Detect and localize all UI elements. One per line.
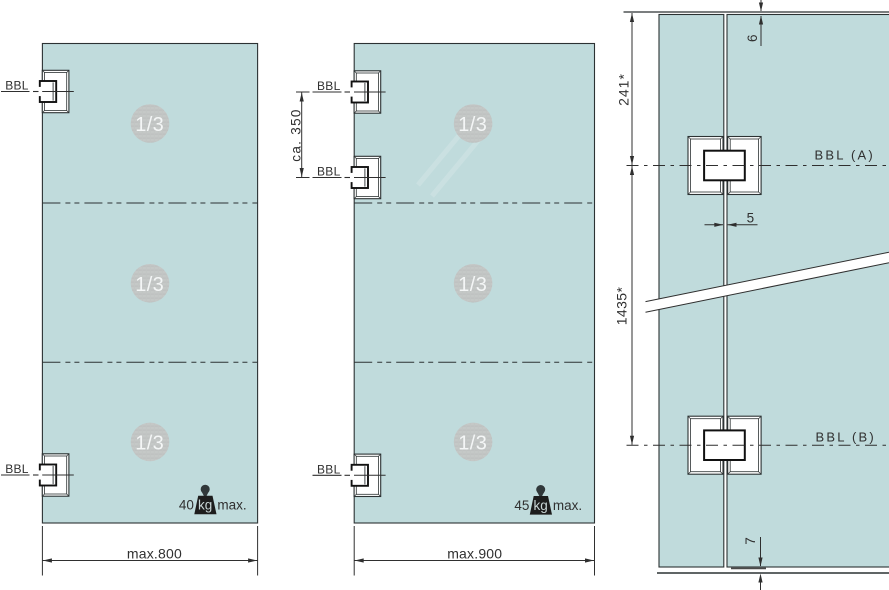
svg-text:1/3: 1/3 [135, 433, 164, 455]
svg-text:241*: 241* [616, 73, 632, 106]
svg-text:BBL (A): BBL (A) [815, 147, 875, 162]
svg-text:max.800: max.800 [127, 546, 182, 562]
svg-text:kg: kg [533, 498, 547, 513]
svg-text:max.900: max.900 [447, 546, 502, 562]
svg-text:BBL: BBL [317, 79, 341, 93]
svg-text:BBL (B): BBL (B) [816, 429, 876, 444]
svg-text:BBL: BBL [5, 79, 29, 93]
svg-text:1/3: 1/3 [135, 274, 164, 296]
svg-text:40: 40 [179, 498, 194, 513]
svg-text:max.: max. [217, 498, 246, 513]
svg-text:7: 7 [743, 537, 758, 545]
svg-text:BBL: BBL [317, 165, 341, 179]
svg-text:max.: max. [553, 498, 582, 513]
svg-text:1/3: 1/3 [458, 114, 487, 136]
svg-text:1/3: 1/3 [135, 114, 164, 136]
svg-text:BBL: BBL [5, 462, 29, 476]
svg-text:1/3: 1/3 [458, 274, 487, 296]
svg-text:5: 5 [747, 210, 755, 225]
svg-text:1435*: 1435* [613, 287, 629, 326]
svg-text:BBL: BBL [317, 463, 341, 477]
svg-text:1/3: 1/3 [458, 433, 487, 455]
svg-text:ca. 350: ca. 350 [288, 108, 303, 161]
svg-text:6: 6 [745, 34, 760, 42]
svg-text:kg: kg [198, 498, 212, 513]
svg-text:45: 45 [514, 498, 529, 513]
